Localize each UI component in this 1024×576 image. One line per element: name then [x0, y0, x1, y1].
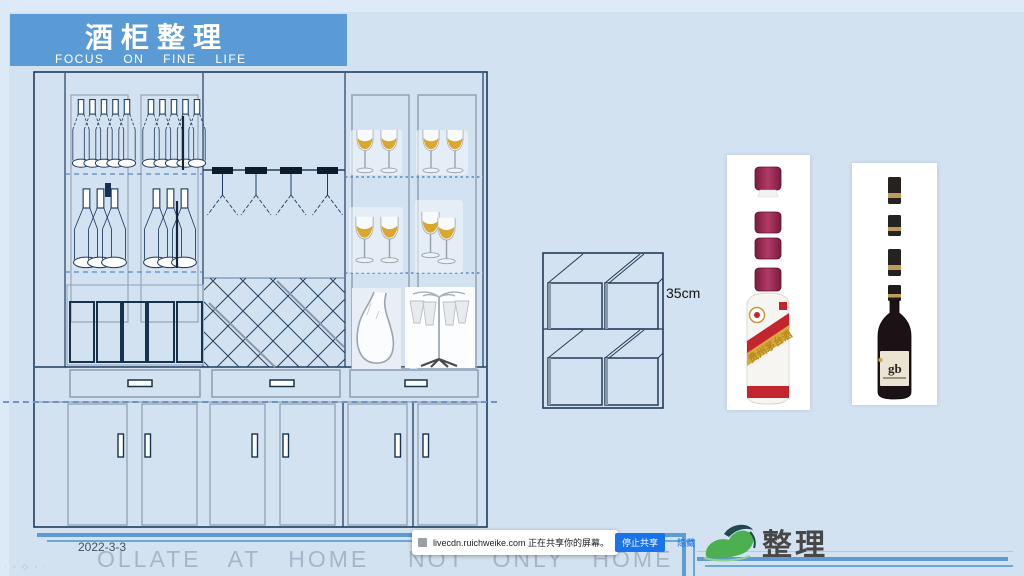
- screen-share-bar: livecdn.ruichweike.com 正在共享你的屏幕。 停止共享 隐藏: [412, 530, 618, 555]
- decanter-photo: [352, 288, 401, 369]
- drawer-row: [70, 370, 478, 397]
- maotai-bottle-icon: 贵州茅台酒: [746, 293, 795, 404]
- drawer-handle: [405, 380, 427, 387]
- wine-cabinet-drawing: [33, 71, 491, 529]
- brand-logo-text: 整理: [762, 520, 828, 564]
- brand-logo: 整理: [698, 518, 828, 564]
- dashed-guide-line: [3, 401, 497, 403]
- door-handle: [395, 434, 401, 457]
- red-wine-product-photo: gb: [852, 163, 937, 405]
- tall-bottle-row-icons: [72, 100, 205, 170]
- box-height-dimension: 35cm: [666, 285, 700, 301]
- top-light-strip: [0, 0, 1024, 12]
- page-subtitle: FOCUS ON FINE LIFE: [55, 52, 247, 66]
- hide-button[interactable]: 隐藏: [671, 535, 701, 550]
- lattice-wine-rack: [203, 278, 345, 367]
- mascot-icon: [698, 518, 762, 564]
- divider-slot-shelf: [67, 285, 203, 365]
- maotai-cap-icon: [755, 167, 781, 291]
- wine-cap-icon: [888, 177, 901, 276]
- title-banner: 酒柜整理 FOCUS ON FINE LIFE: [10, 14, 347, 66]
- left-light-strip: [0, 0, 9, 576]
- door-handle: [118, 434, 124, 457]
- drawer-handle: [270, 380, 294, 387]
- wine-bottle-icon: gb: [878, 285, 911, 399]
- stemware-rack: [203, 167, 345, 215]
- footer-line-thin-right: [705, 565, 1013, 567]
- cabinet-doors: [68, 402, 477, 527]
- maotai-product-photo: 贵州茅台酒: [727, 155, 810, 410]
- door-handle: [145, 434, 151, 457]
- watermark-left: OLLATE AT HOME: [97, 546, 369, 573]
- cast-icon: [418, 538, 427, 547]
- drawer-handle: [128, 380, 152, 387]
- stop-sharing-button[interactable]: 停止共享: [615, 533, 665, 552]
- door-handle: [283, 434, 289, 457]
- glass-tree-photo: [405, 287, 475, 368]
- storage-box-sketch: [538, 248, 670, 412]
- share-message: livecdn.ruichweike.com 正在共享你的屏幕。: [433, 536, 609, 549]
- page-title: 酒柜整理: [85, 16, 229, 56]
- svg-text:gb: gb: [888, 361, 902, 376]
- watermark-corner-marks: · ◦ ◇ ◦ ·: [4, 562, 48, 571]
- wine-bottle-row-icons: [74, 183, 197, 268]
- door-handle: [252, 434, 258, 457]
- door-handle: [423, 434, 429, 457]
